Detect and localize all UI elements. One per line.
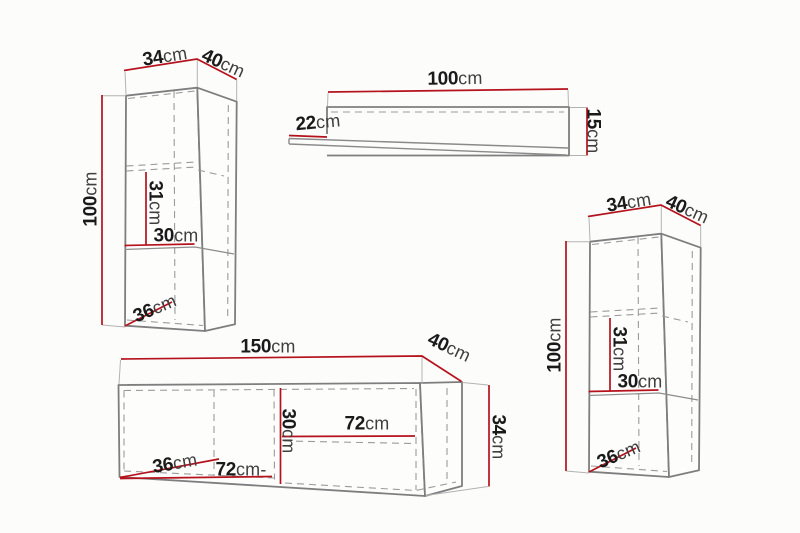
cabinet-side-face [197, 88, 236, 331]
shelf-width-dimension-line [282, 436, 415, 437]
width-dimension-label: 100cm [427, 68, 483, 90]
tvstand-front-face [119, 383, 426, 496]
inner-height-dimension-label: 31cm [145, 181, 166, 226]
height-dimension-label: 100cm [80, 171, 101, 226]
furniture-dimensions-diagram: 34cm 40cm 100cm 31cm 30cm 36cm 100cm 22c… [0, 0, 800, 533]
height-dimension-label: 100cm [544, 317, 565, 372]
height-dimension-label: 34cm [488, 415, 509, 460]
inner-height-dimension-label: 30cm [278, 409, 299, 454]
shelf-width-dimension-label: 72cm [345, 413, 390, 434]
width-dimension-label: 150cm [240, 336, 295, 357]
cabinet-side-face [661, 234, 700, 477]
height-dimension-label: 15cm [583, 109, 604, 154]
inner-width-dimension-label: 30cm [618, 371, 663, 392]
inner-height-dimension-label: 31cm [609, 327, 630, 372]
tvstand-side-face [420, 382, 462, 496]
inner-width-dimension-label: 30cm [154, 225, 199, 246]
bottom-width-dimension-label: 72cm- [215, 459, 266, 480]
